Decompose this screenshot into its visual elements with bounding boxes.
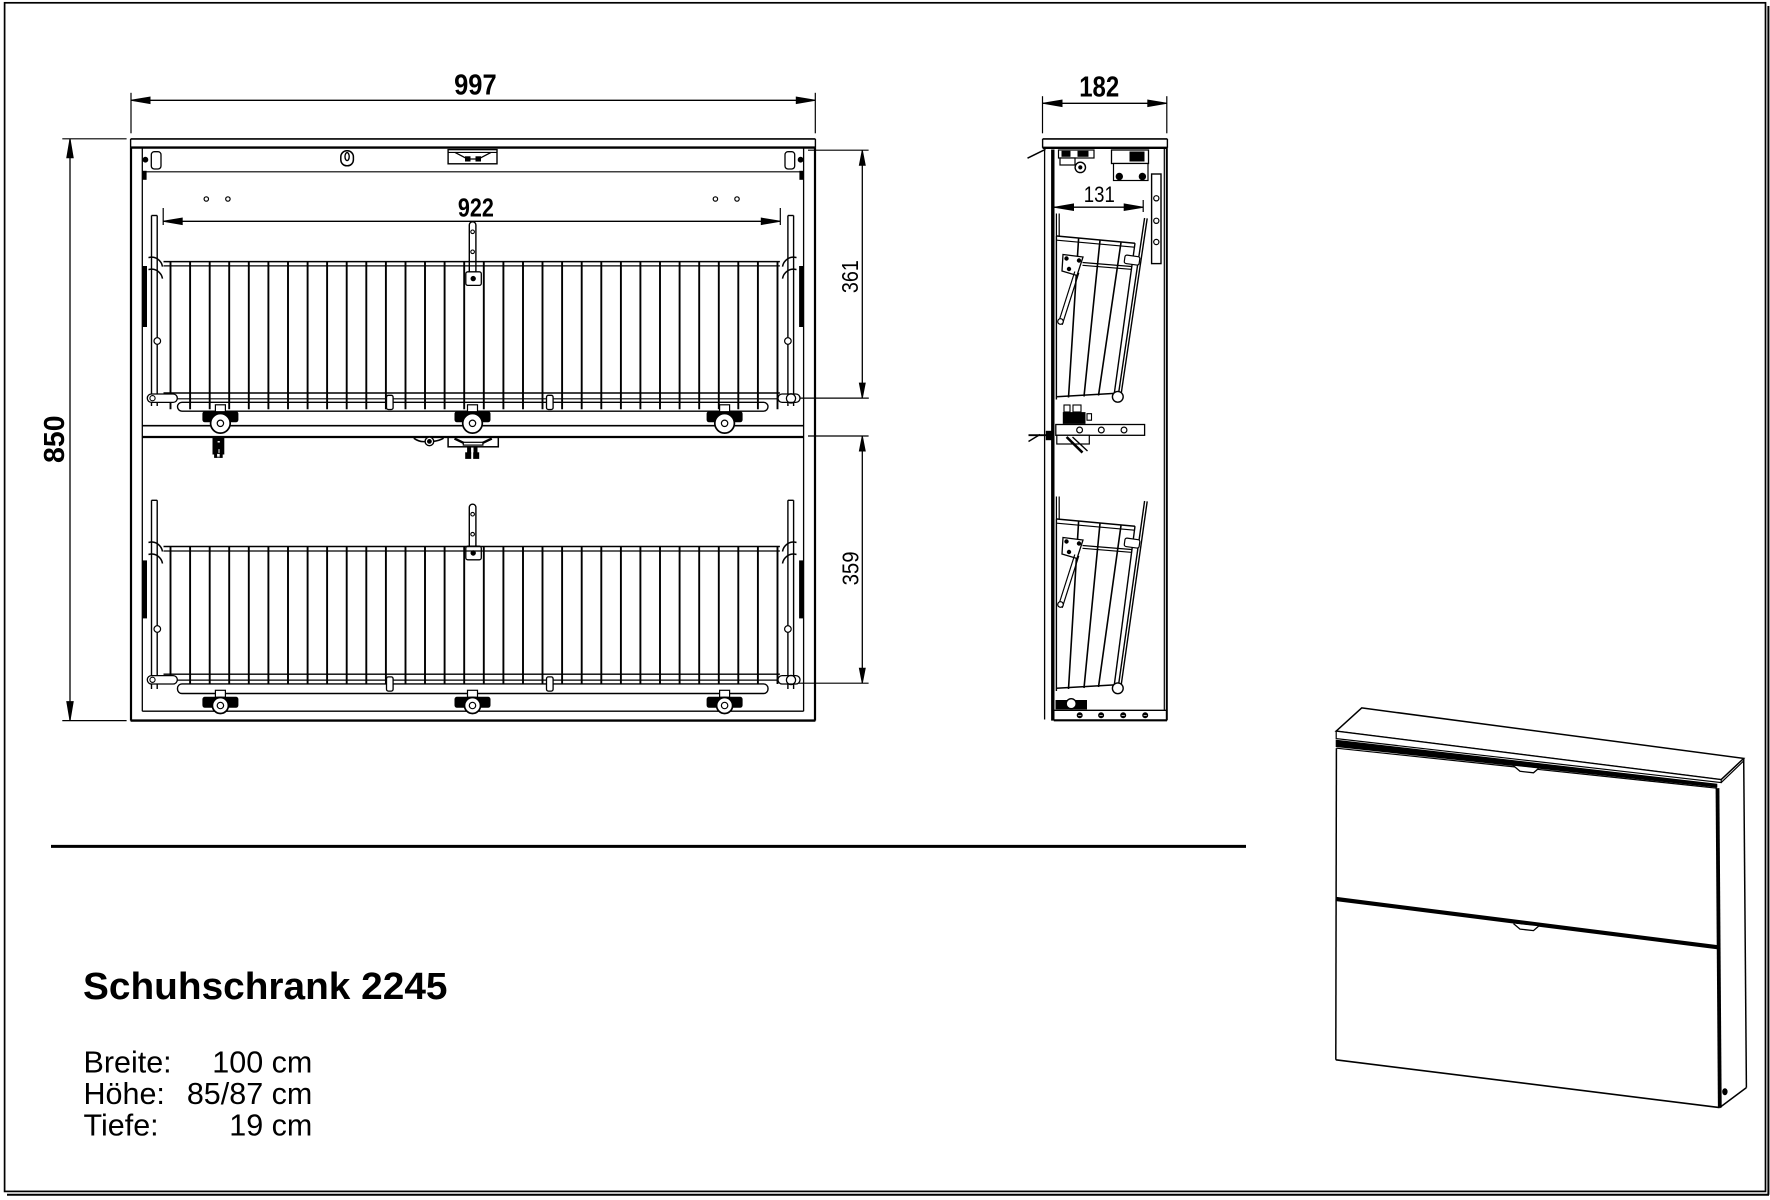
svg-text:Höhe:: Höhe: — [84, 1077, 165, 1111]
svg-text:182: 182 — [1079, 72, 1119, 104]
svg-text:19 cm: 19 cm — [229, 1108, 312, 1142]
svg-text:359: 359 — [838, 551, 864, 585]
svg-text:Schuhschrank 2245: Schuhschrank 2245 — [83, 966, 448, 1008]
svg-text:100 cm: 100 cm — [212, 1045, 312, 1079]
svg-text:85/87 cm: 85/87 cm — [187, 1077, 312, 1111]
svg-text:361: 361 — [837, 260, 863, 293]
svg-text:Breite:: Breite: — [84, 1045, 172, 1079]
svg-text:997: 997 — [454, 70, 497, 102]
svg-text:Tiefe:: Tiefe: — [84, 1108, 159, 1142]
svg-text:850: 850 — [39, 415, 71, 463]
svg-text:922: 922 — [458, 193, 494, 223]
svg-text:131: 131 — [1084, 182, 1115, 207]
